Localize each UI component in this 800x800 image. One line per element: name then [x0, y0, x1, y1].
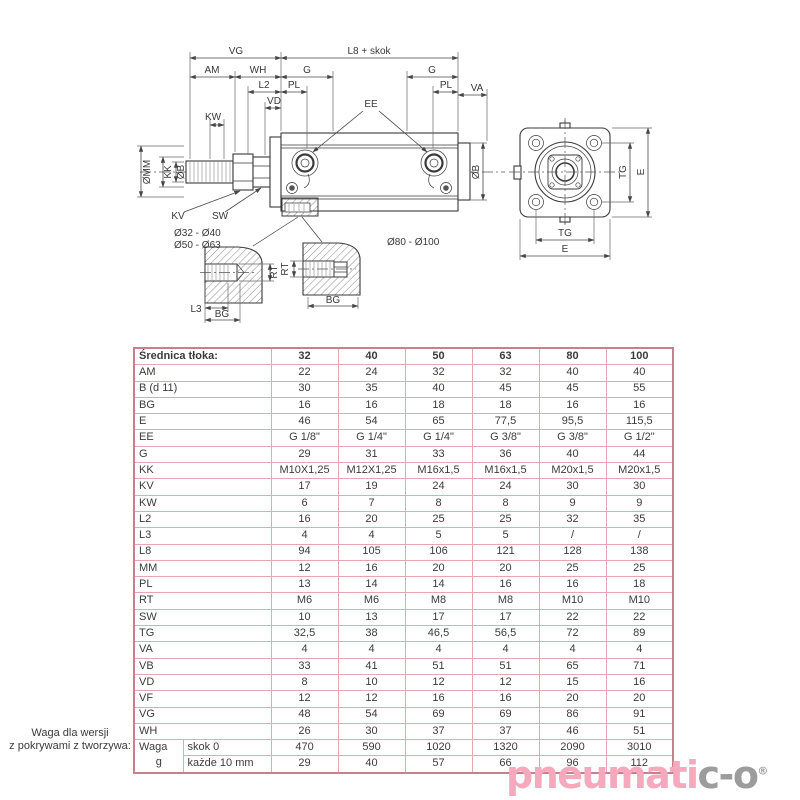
- row-label: VG: [134, 707, 271, 723]
- row-value: G 3/8": [539, 430, 606, 446]
- row-value: 17: [271, 479, 338, 495]
- row-value: 4: [539, 642, 606, 658]
- dim-label-omm: ØMM: [142, 160, 153, 184]
- row-value: 95,5: [539, 414, 606, 430]
- dim-label-rt-right: RT: [280, 262, 291, 275]
- dim-label-ob-body: ØB: [471, 164, 482, 179]
- col-header-100: 100: [606, 348, 673, 365]
- row-label: WH: [134, 723, 271, 739]
- dim-label-l2: L2: [258, 80, 270, 91]
- table-row: RTM6M6M8M8M10M10: [134, 593, 673, 609]
- dim-label-am: AM: [205, 65, 220, 76]
- row-value: 45: [472, 381, 539, 397]
- row-label: L3: [134, 528, 271, 544]
- dim-label-tg-right: TG: [618, 165, 629, 179]
- detail-right: [298, 243, 360, 295]
- row-value: 46: [539, 723, 606, 739]
- table-row: TG32,53846,556,57289: [134, 626, 673, 642]
- row-value: M20x1,5: [539, 463, 606, 479]
- end-view: [509, 118, 621, 227]
- row-value: 18: [405, 397, 472, 413]
- row-value: 25: [472, 511, 539, 527]
- row-value: 40: [539, 365, 606, 381]
- spec-table: Średnica tłoka: 32 40 50 63 80 100 AM222…: [133, 347, 674, 774]
- row-value: 7: [338, 495, 405, 511]
- row-value: 12: [472, 674, 539, 690]
- row-value: 89: [606, 626, 673, 642]
- dim-label-tg-bottom: TG: [558, 228, 572, 239]
- row-value: 29: [271, 756, 338, 773]
- dim-label-l3: L3: [190, 304, 202, 315]
- row-value: 40: [539, 446, 606, 462]
- row-value: 38: [338, 626, 405, 642]
- row-value: M16x1,5: [405, 463, 472, 479]
- row-value: 40: [606, 365, 673, 381]
- row-value: 36: [472, 446, 539, 462]
- logo-text-gray: c-o: [698, 753, 758, 797]
- row-value: 13: [271, 577, 338, 593]
- row-value: 44: [606, 446, 673, 462]
- row-value: 35: [606, 511, 673, 527]
- row-value: 26: [271, 723, 338, 739]
- row-value: 56,5: [472, 626, 539, 642]
- col-header-80: 80: [539, 348, 606, 365]
- row-value: 25: [539, 560, 606, 576]
- table-row: VB334151516571: [134, 658, 673, 674]
- table-row: VF121216162020: [134, 691, 673, 707]
- table-row: VD81012121516: [134, 674, 673, 690]
- row-value: 20: [606, 691, 673, 707]
- row-label: VB: [134, 658, 271, 674]
- row-value: 4: [472, 642, 539, 658]
- body-diameter-dimension: ØB: [470, 143, 487, 200]
- col-header-50: 50: [405, 348, 472, 365]
- row-value: 30: [606, 479, 673, 495]
- row-value: 72: [539, 626, 606, 642]
- row-value: 20: [472, 560, 539, 576]
- row-value: 54: [338, 707, 405, 723]
- row-value: 40: [405, 381, 472, 397]
- row-label: G: [134, 446, 271, 462]
- row-value: 14: [338, 577, 405, 593]
- col-header-63: 63: [472, 348, 539, 365]
- row-value: G 1/4": [405, 430, 472, 446]
- row-value: 16: [606, 674, 673, 690]
- registered-trademark-icon: ®: [757, 764, 768, 777]
- row-value: 40: [338, 756, 405, 773]
- row-value: 12: [338, 691, 405, 707]
- row-value: 22: [539, 609, 606, 625]
- row-label: L8: [134, 544, 271, 560]
- row-value: 16: [338, 560, 405, 576]
- row-value: 1020: [405, 740, 472, 756]
- row-value: 16: [539, 577, 606, 593]
- row-value: M8: [405, 593, 472, 609]
- row-label: AM: [134, 365, 271, 381]
- table-row: KW678899: [134, 495, 673, 511]
- row-value: 33: [271, 658, 338, 674]
- row-label: KV: [134, 479, 271, 495]
- table-row: B (d 11)303540454555: [134, 381, 673, 397]
- row-label: KK: [134, 463, 271, 479]
- row-value: 8: [405, 495, 472, 511]
- row-label: L2: [134, 511, 271, 527]
- row-label: VA: [134, 642, 271, 658]
- table-row: EEG 1/8"G 1/4"G 1/4"G 3/8"G 3/8"G 1/2": [134, 430, 673, 446]
- col-header-40: 40: [338, 348, 405, 365]
- table-row: PL131414161618: [134, 577, 673, 593]
- table-row: MM121620202525: [134, 560, 673, 576]
- row-value: 20: [338, 511, 405, 527]
- row-value: 115,5: [606, 414, 673, 430]
- dim-label-bg-left: BG: [215, 309, 230, 320]
- row-value: 30: [338, 723, 405, 739]
- row-value: 46: [271, 414, 338, 430]
- row-value: 13: [338, 609, 405, 625]
- row-value: M10: [606, 593, 673, 609]
- row-value: 51: [405, 658, 472, 674]
- row-value: 25: [405, 511, 472, 527]
- row-value: 48: [271, 707, 338, 723]
- row-value: M12X1,25: [338, 463, 405, 479]
- row-value: 69: [405, 707, 472, 723]
- row-value: 138: [606, 544, 673, 560]
- table-row: G293133364044: [134, 446, 673, 462]
- row-value: 65: [539, 658, 606, 674]
- waga-label-cell: Wagag: [134, 740, 183, 773]
- waga-unit-label: g: [139, 755, 179, 770]
- row-label: TG: [134, 626, 271, 642]
- row-label: EE: [134, 430, 271, 446]
- row-value: 17: [405, 609, 472, 625]
- row-value: 12: [271, 560, 338, 576]
- row-value: 22: [606, 609, 673, 625]
- table-row: BG161618181616: [134, 397, 673, 413]
- row-value: 18: [472, 397, 539, 413]
- waga-label: Waga: [139, 740, 179, 755]
- row-value: /: [539, 528, 606, 544]
- technical-drawing: VG L8 + skok AM WH G G L2 PL PL VA VD KW…: [0, 0, 800, 345]
- col-header-32: 32: [271, 348, 338, 365]
- row-label: VD: [134, 674, 271, 690]
- dim-label-rt-left: RT: [269, 265, 280, 278]
- table-row: SW101317172222: [134, 609, 673, 625]
- table-row: WH263037374651: [134, 723, 673, 739]
- row-label: KW: [134, 495, 271, 511]
- table-row: L894105106121128138: [134, 544, 673, 560]
- waga-sub-label: skok 0: [183, 740, 271, 756]
- row-value: 5: [472, 528, 539, 544]
- row-value: M6: [338, 593, 405, 609]
- row-value: M16x1,5: [472, 463, 539, 479]
- dim-label-l8-skok: L8 + skok: [347, 46, 391, 57]
- dim-label-g-rear: G: [428, 65, 436, 76]
- pneumatico-logo: pneumatic-o®: [506, 753, 768, 797]
- row-value: M10: [539, 593, 606, 609]
- dim-label-e-right: E: [636, 168, 647, 175]
- footnote-line2: z pokrywami z tworzywa:: [0, 740, 140, 753]
- row-value: 20: [539, 691, 606, 707]
- row-value: 32: [405, 365, 472, 381]
- row-value: /: [606, 528, 673, 544]
- row-value: 32: [539, 511, 606, 527]
- row-value: 94: [271, 544, 338, 560]
- row-value: 30: [271, 381, 338, 397]
- row-value: 18: [606, 577, 673, 593]
- row-value: 10: [271, 609, 338, 625]
- row-value: 37: [472, 723, 539, 739]
- row-value: 37: [405, 723, 472, 739]
- row-value: 30: [539, 479, 606, 495]
- dim-label-wh: WH: [250, 65, 267, 76]
- row-value: 57: [405, 756, 472, 773]
- footnote-line1: Waga dla wersji: [0, 727, 140, 740]
- row-value: 4: [606, 642, 673, 658]
- row-value: 8: [472, 495, 539, 511]
- row-label: BG: [134, 397, 271, 413]
- dim-label-pl-rear: PL: [440, 80, 453, 91]
- row-value: 4: [338, 528, 405, 544]
- row-value: M20x1,5: [606, 463, 673, 479]
- row-value: 54: [338, 414, 405, 430]
- row-value: 20: [405, 560, 472, 576]
- datasheet-page: VG L8 + skok AM WH G G L2 PL PL VA VD KW…: [0, 0, 800, 800]
- row-value: 33: [405, 446, 472, 462]
- dim-label-vd: VD: [267, 96, 281, 107]
- row-value: M6: [271, 593, 338, 609]
- row-value: 32: [472, 365, 539, 381]
- note-range-large: Ø80 - Ø100: [387, 237, 440, 248]
- row-value: 51: [472, 658, 539, 674]
- row-value: G 1/2": [606, 430, 673, 446]
- table-row: L34455//: [134, 528, 673, 544]
- row-value: 31: [338, 446, 405, 462]
- note-range-small: Ø32 - Ø40: [174, 228, 221, 239]
- row-value: 32,5: [271, 626, 338, 642]
- dim-label-g-front: G: [303, 65, 311, 76]
- dim-label-kv: KV: [171, 211, 185, 222]
- dim-label-kk: KK: [163, 165, 174, 179]
- dim-label-pl-front: PL: [288, 80, 301, 91]
- table-title: Średnica tłoka:: [134, 348, 271, 365]
- row-value: 16: [472, 691, 539, 707]
- table-row: L2162025253235: [134, 511, 673, 527]
- row-value: 16: [472, 577, 539, 593]
- row-value: 105: [338, 544, 405, 560]
- table-row: E46546577,595,5115,5: [134, 414, 673, 430]
- table-row: AM222432324040: [134, 365, 673, 381]
- weight-footnote: Waga dla wersji z pokrywami z tworzywa:: [0, 727, 140, 753]
- row-value: 35: [338, 381, 405, 397]
- row-value: 4: [405, 642, 472, 658]
- logo-text-pink: pneumati: [506, 753, 698, 797]
- row-value: 470: [271, 740, 338, 756]
- row-value: 65: [405, 414, 472, 430]
- row-value: 16: [271, 397, 338, 413]
- row-value: 4: [271, 642, 338, 658]
- row-value: 4: [338, 642, 405, 658]
- dim-label-ee: EE: [364, 99, 378, 110]
- row-value: 24: [405, 479, 472, 495]
- row-value: 128: [539, 544, 606, 560]
- row-value: 46,5: [405, 626, 472, 642]
- row-label: B (d 11): [134, 381, 271, 397]
- row-value: 22: [271, 365, 338, 381]
- row-label: E: [134, 414, 271, 430]
- row-value: 8: [271, 674, 338, 690]
- table-row: KKM10X1,25M12X1,25M16x1,5M16x1,5M20x1,5M…: [134, 463, 673, 479]
- dim-label-va: VA: [471, 83, 484, 94]
- row-value: 10: [338, 674, 405, 690]
- detail-left: [200, 247, 262, 303]
- row-value: 9: [539, 495, 606, 511]
- table-row: VA444444: [134, 642, 673, 658]
- row-value: 12: [405, 674, 472, 690]
- table-row: KV171924243030: [134, 479, 673, 495]
- dim-label-bg-right: BG: [326, 295, 341, 306]
- row-value: 121: [472, 544, 539, 560]
- row-value: 29: [271, 446, 338, 462]
- dim-label-e-bottom: E: [562, 244, 569, 255]
- dim-label-kw: KW: [205, 112, 222, 123]
- row-label: VF: [134, 691, 271, 707]
- row-value: 41: [338, 658, 405, 674]
- row-value: 17: [472, 609, 539, 625]
- row-value: 77,5: [472, 414, 539, 430]
- row-value: 16: [606, 397, 673, 413]
- dim-label-vg: VG: [229, 46, 244, 57]
- row-value: 45: [539, 381, 606, 397]
- row-value: 9: [606, 495, 673, 511]
- row-value: 51: [606, 723, 673, 739]
- row-value: 25: [606, 560, 673, 576]
- row-value: 6: [271, 495, 338, 511]
- row-value: 86: [539, 707, 606, 723]
- row-value: 71: [606, 658, 673, 674]
- row-value: 12: [271, 691, 338, 707]
- row-value: 19: [338, 479, 405, 495]
- waga-sub-label: każde 10 mm: [183, 756, 271, 773]
- row-label: RT: [134, 593, 271, 609]
- row-value: 16: [405, 691, 472, 707]
- row-value: 16: [338, 397, 405, 413]
- row-value: 55: [606, 381, 673, 397]
- row-value: G 3/8": [472, 430, 539, 446]
- row-value: 4: [271, 528, 338, 544]
- row-value: G 1/8": [271, 430, 338, 446]
- row-label: PL: [134, 577, 271, 593]
- table-row: VG485469698691: [134, 707, 673, 723]
- row-value: 106: [405, 544, 472, 560]
- row-value: 24: [472, 479, 539, 495]
- row-value: 91: [606, 707, 673, 723]
- row-value: M10X1,25: [271, 463, 338, 479]
- row-value: 69: [472, 707, 539, 723]
- row-label: SW: [134, 609, 271, 625]
- dim-label-ob-rod: ØB: [176, 164, 187, 179]
- row-value: 24: [338, 365, 405, 381]
- dim-label-sw: SW: [212, 211, 229, 222]
- row-value: 14: [405, 577, 472, 593]
- row-label: MM: [134, 560, 271, 576]
- row-value: M8: [472, 593, 539, 609]
- row-value: G 1/4": [338, 430, 405, 446]
- spec-table-body: AM222432324040B (d 11)303540454555BG1616…: [134, 365, 673, 773]
- row-value: 5: [405, 528, 472, 544]
- row-value: 16: [271, 511, 338, 527]
- row-value: 590: [338, 740, 405, 756]
- row-value: 15: [539, 674, 606, 690]
- spec-header-row: Średnica tłoka: 32 40 50 63 80 100: [134, 348, 673, 365]
- row-value: 16: [539, 397, 606, 413]
